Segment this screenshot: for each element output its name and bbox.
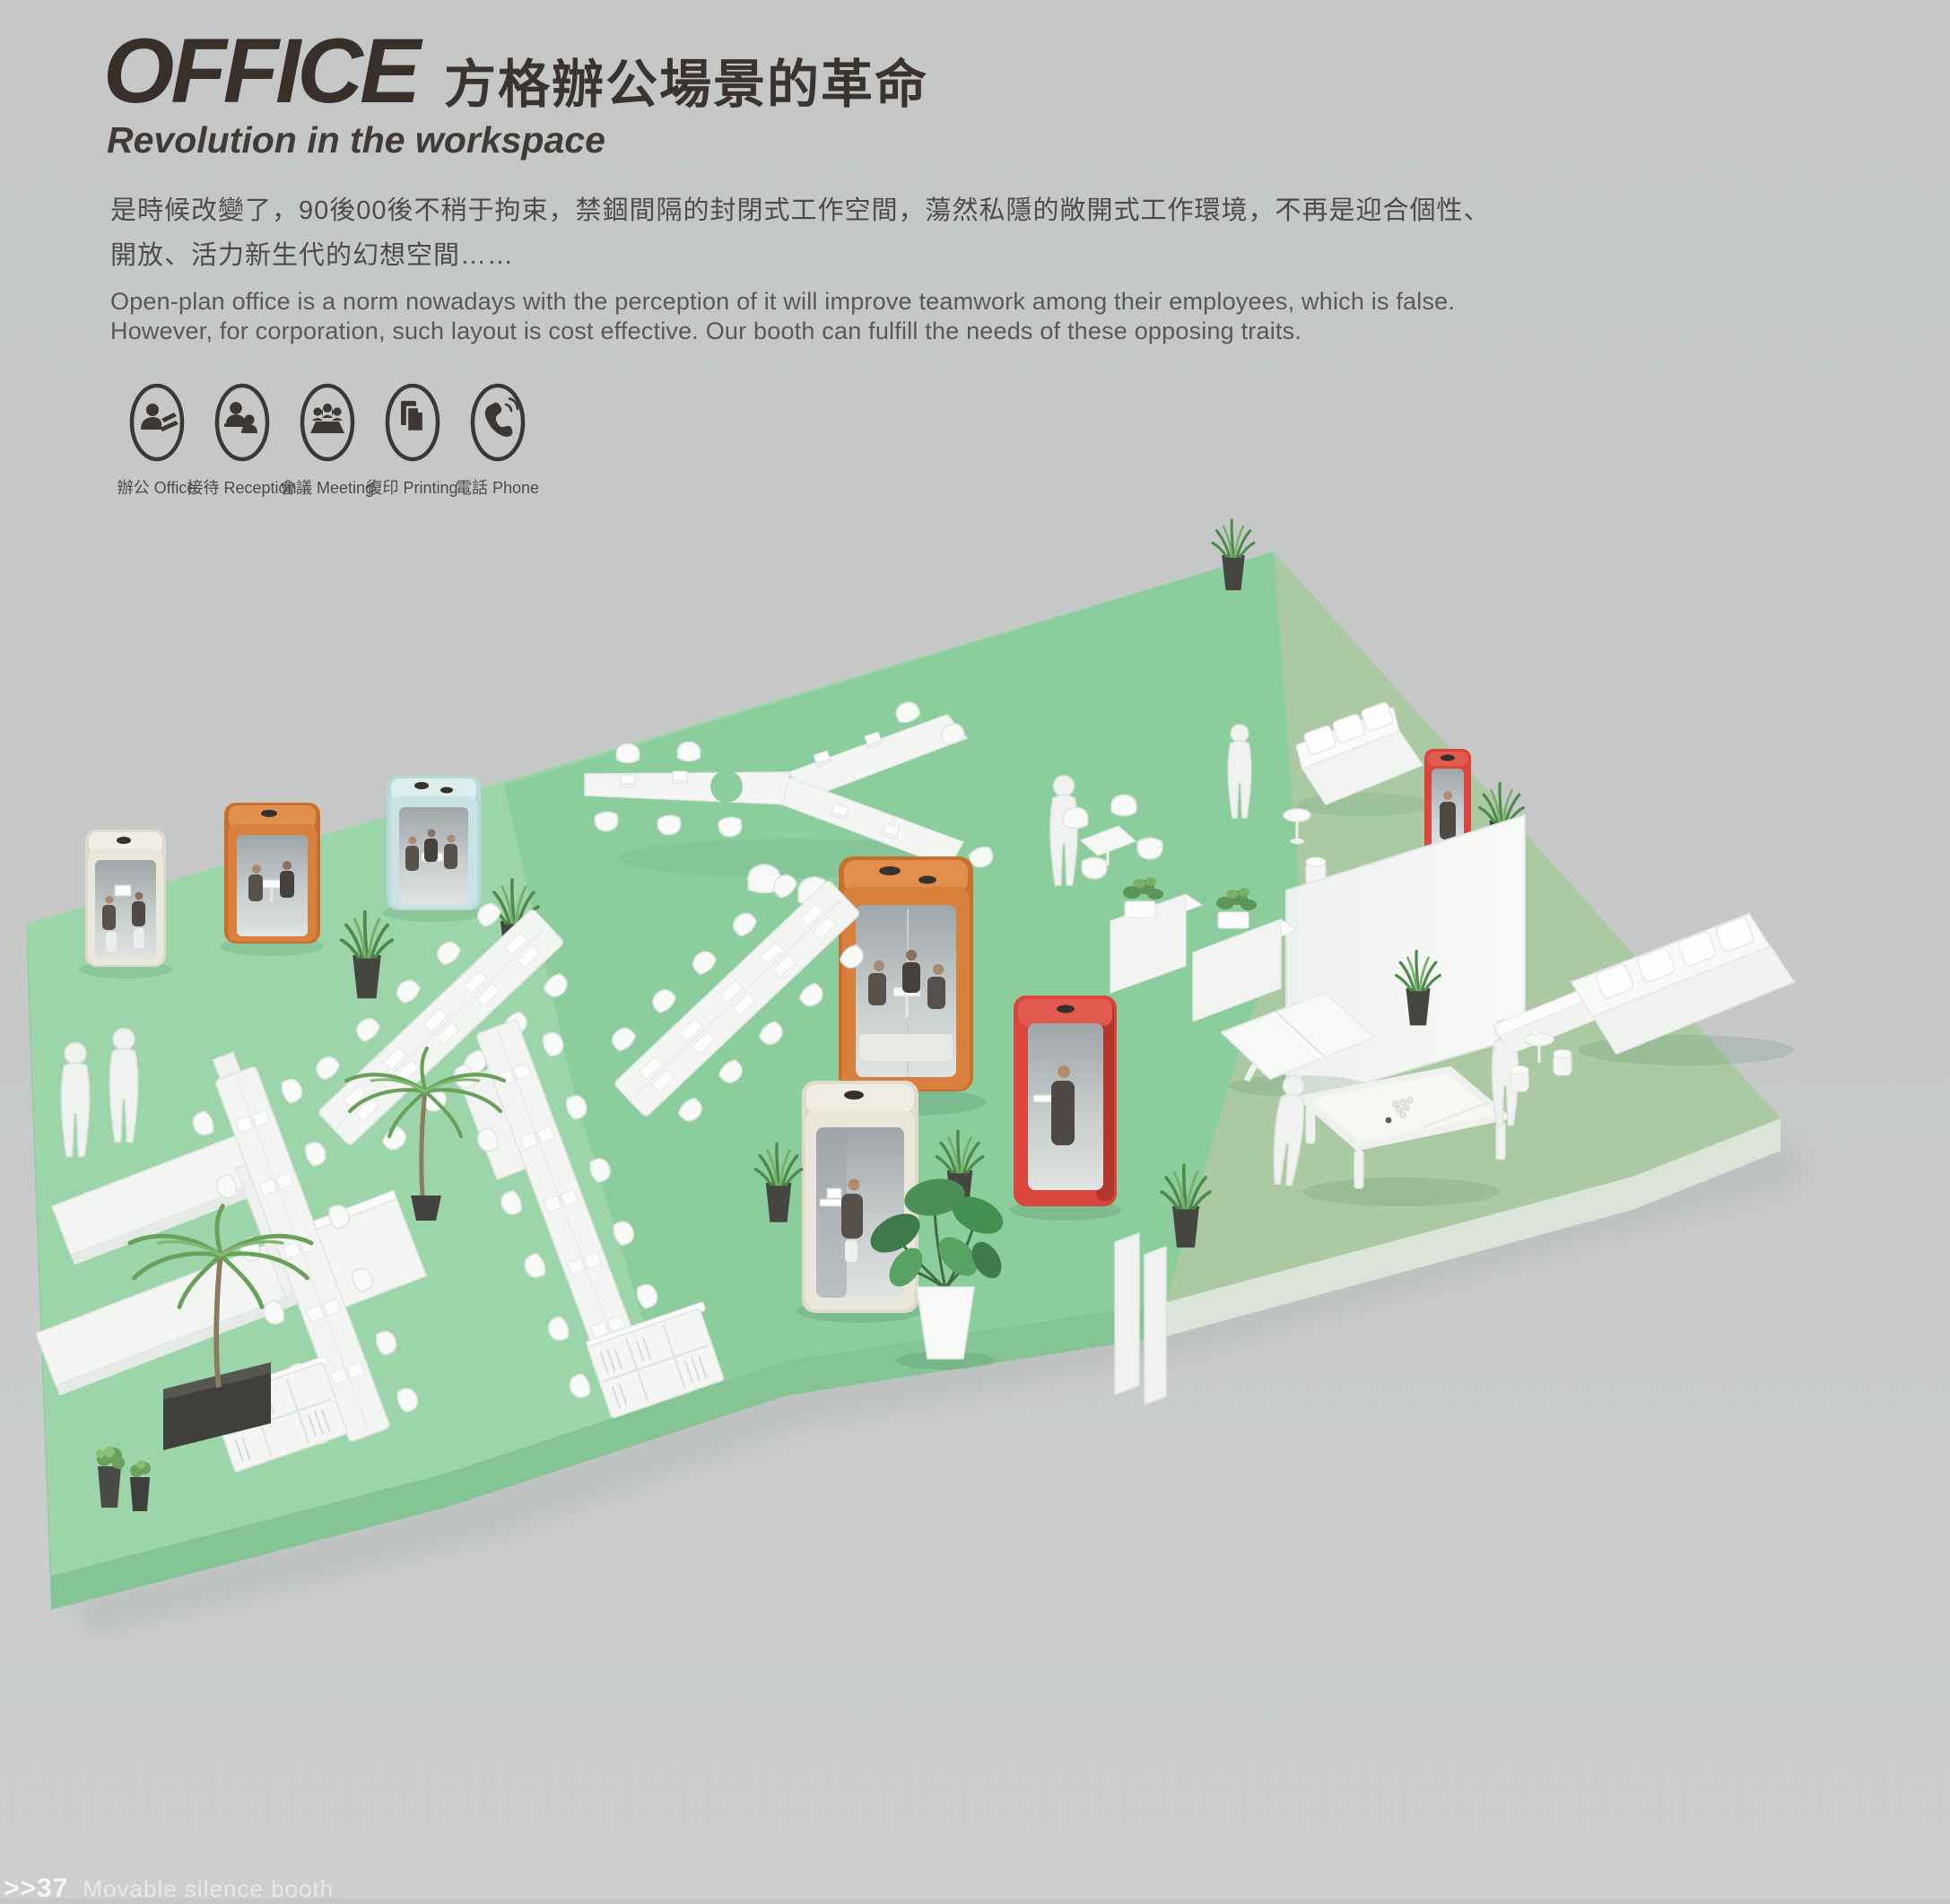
- silence-booth-small-orange: [220, 803, 324, 956]
- feature-label: 復印 Printing: [366, 475, 457, 499]
- page-footer: >>37 Movable silence booth: [4, 1874, 334, 1904]
- meeting-icon: [299, 382, 356, 463]
- silence-booth-large-orange: [829, 856, 987, 1116]
- intro-en-line2: However, for corporation, such layout is…: [110, 317, 1538, 346]
- page-number-marker: >>37: [4, 1874, 68, 1904]
- intro-paragraph-english: Open-plan office is a norm nowadays with…: [110, 287, 1538, 346]
- feature-meeting: 會議 Meeting: [284, 382, 370, 499]
- feature-label: 辦公 Office: [118, 475, 196, 499]
- title-row: OFFICE 方格辦公場景的革命: [103, 25, 1538, 117]
- feature-printing: 復印 Printing: [370, 382, 455, 499]
- office-scene-illustration: [0, 500, 1950, 1899]
- page-title: OFFICE: [103, 25, 417, 117]
- intro-paragraph-chinese: 是時候改變了，90後00後不稍于拘束，禁錮間隔的封閉式工作空間，蕩然私隱的敞開式…: [110, 188, 1538, 278]
- office-person-icon: [128, 382, 186, 463]
- silence-booth-small-cream: [79, 830, 172, 978]
- page-title-chinese: 方格辦公場景的革命: [444, 42, 928, 117]
- silence-booth-work-cream: [797, 1081, 922, 1323]
- reception-icon: [213, 382, 271, 463]
- page-subtitle: Revolution in the workspace: [107, 119, 1538, 161]
- intro-zh-line2: 開放、活力新生代的幻想空間……: [110, 233, 1538, 278]
- page-header: OFFICE 方格辦公場景的革命 Revolution in the works…: [103, 25, 1538, 499]
- intro-zh-line1: 是時候改變了，90後00後不稍于拘束，禁錮間隔的封閉式工作空間，蕩然私隱的敞開式…: [110, 188, 1538, 233]
- intro-en-line1: Open-plan office is a norm nowadays with…: [110, 287, 1538, 317]
- silence-booth-small-blue: [383, 776, 483, 922]
- feature-label: 電話 Phone: [456, 475, 539, 499]
- footer-caption: Movable silence booth: [83, 1875, 334, 1903]
- silence-booth-phone-red: [1010, 995, 1121, 1221]
- feature-label: 會議 Meeting: [280, 475, 374, 499]
- feature-reception: 接待 Reception: [199, 382, 284, 499]
- feature-phone: 電話 Phone: [455, 382, 540, 499]
- feature-icon-row: 辦公 Office 接待 Reception: [114, 382, 1538, 499]
- printing-icon: [384, 382, 441, 463]
- phone-icon: [469, 382, 527, 463]
